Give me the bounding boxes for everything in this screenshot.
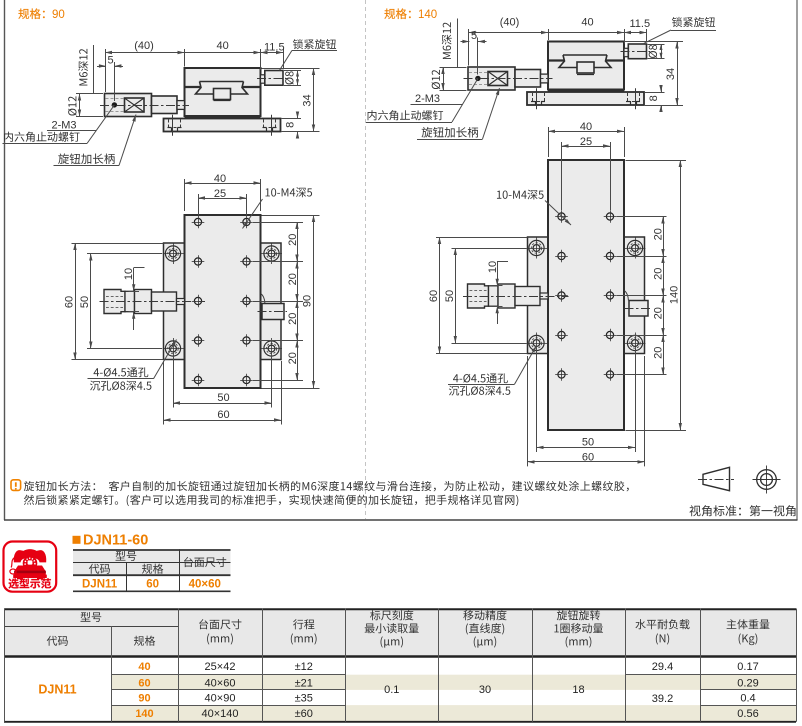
svg-text:40: 40: [580, 121, 592, 133]
svg-text:20: 20: [287, 234, 299, 246]
svg-text:2-M3: 2-M3: [415, 93, 440, 105]
svg-text:40: 40: [216, 40, 228, 52]
svg-text:DJN11: DJN11: [38, 683, 76, 697]
svg-text:DJN11: DJN11: [82, 579, 118, 591]
svg-text:50: 50: [582, 436, 594, 448]
svg-text:8: 8: [648, 95, 660, 101]
svg-text:18: 18: [572, 684, 584, 696]
svg-text:20: 20: [653, 268, 665, 280]
svg-text:2-M3: 2-M3: [51, 120, 76, 132]
svg-text:60: 60: [428, 290, 440, 302]
svg-text:60: 60: [146, 579, 159, 591]
svg-text:60: 60: [138, 677, 150, 689]
svg-text:60: 60: [217, 409, 229, 421]
svg-text:40×90: 40×90: [205, 693, 236, 705]
svg-text:50: 50: [79, 296, 91, 308]
svg-text:50: 50: [444, 290, 456, 302]
svg-text:(40): (40): [500, 17, 520, 29]
svg-text:20: 20: [287, 273, 299, 285]
svg-text:0.29: 0.29: [737, 677, 758, 689]
svg-text:140: 140: [669, 286, 681, 304]
svg-text:±21: ±21: [295, 677, 313, 689]
svg-text:40×60: 40×60: [189, 579, 221, 591]
svg-text:20: 20: [653, 228, 665, 240]
svg-text:40×60: 40×60: [205, 677, 236, 689]
svg-text:60: 60: [64, 296, 76, 308]
svg-text:0.56: 0.56: [737, 708, 758, 720]
svg-text:90: 90: [302, 295, 314, 307]
svg-text:90: 90: [52, 9, 65, 21]
svg-text:140: 140: [135, 708, 153, 720]
svg-text:±60: ±60: [295, 708, 313, 720]
svg-text:60: 60: [582, 451, 594, 463]
svg-text:(40): (40): [134, 40, 154, 52]
svg-text:DJN11-60: DJN11-60: [83, 533, 148, 549]
svg-text:40: 40: [214, 173, 226, 185]
svg-text:50: 50: [217, 392, 229, 404]
svg-text:5: 5: [107, 55, 113, 67]
svg-text:20: 20: [653, 347, 665, 359]
svg-text:40×140: 40×140: [201, 708, 238, 720]
svg-text:11.5: 11.5: [630, 18, 651, 30]
svg-text:25: 25: [580, 136, 592, 148]
svg-text:30: 30: [479, 684, 491, 696]
svg-text:34: 34: [302, 94, 314, 106]
svg-text:0.17: 0.17: [737, 661, 758, 673]
svg-text:8: 8: [285, 122, 297, 128]
svg-text:29.4: 29.4: [652, 661, 673, 673]
svg-text:20: 20: [653, 307, 665, 319]
svg-text:90: 90: [138, 693, 150, 705]
svg-text:5: 5: [471, 30, 477, 42]
svg-text:25×42: 25×42: [205, 661, 236, 673]
svg-text:0.4: 0.4: [740, 693, 755, 705]
svg-text:140: 140: [418, 9, 437, 21]
svg-text:20: 20: [287, 313, 299, 325]
svg-text:11.5: 11.5: [264, 42, 285, 54]
svg-text:40: 40: [581, 17, 593, 29]
svg-text:0.1: 0.1: [384, 684, 399, 696]
svg-text:40: 40: [138, 661, 150, 673]
svg-text:20: 20: [287, 352, 299, 364]
svg-text:±35: ±35: [295, 693, 313, 705]
svg-text:±12: ±12: [295, 661, 313, 673]
svg-text:34: 34: [665, 68, 677, 80]
svg-text:25: 25: [214, 188, 226, 200]
svg-text:39.2: 39.2: [652, 693, 673, 705]
